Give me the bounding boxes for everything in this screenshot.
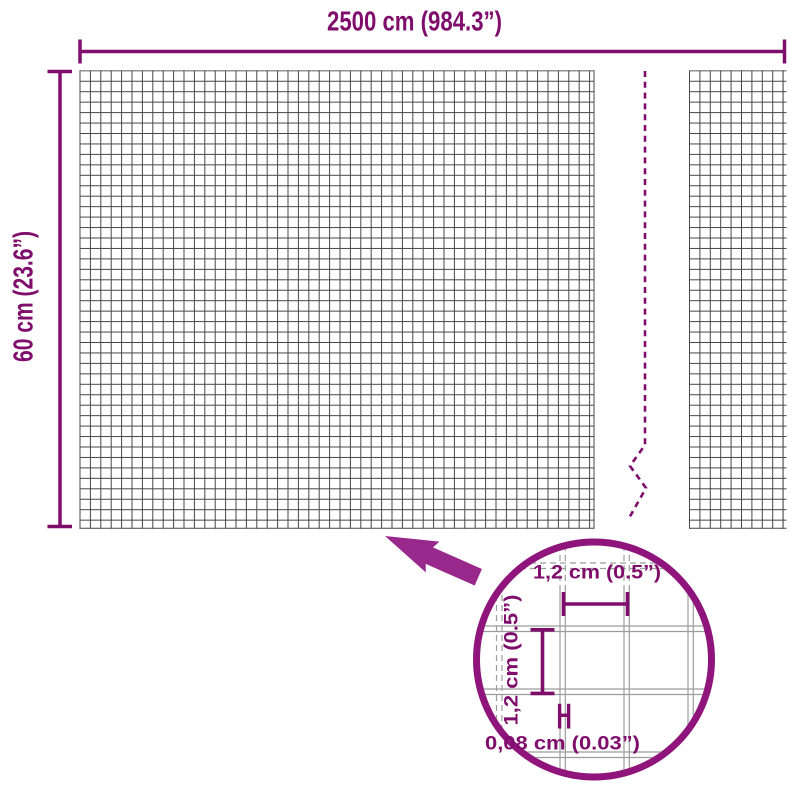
svg-text:2500 cm (984.3”): 2500 cm (984.3”) — [327, 6, 502, 37]
svg-text:1,2 cm (0.5”): 1,2 cm (0.5”) — [533, 563, 661, 584]
svg-text:0,08 cm (0.03”): 0,08 cm (0.03”) — [485, 734, 640, 755]
svg-text:60 cm (23.6”): 60 cm (23.6”) — [8, 231, 39, 362]
svg-text:1,2 cm (0.5”): 1,2 cm (0.5”) — [502, 595, 523, 726]
